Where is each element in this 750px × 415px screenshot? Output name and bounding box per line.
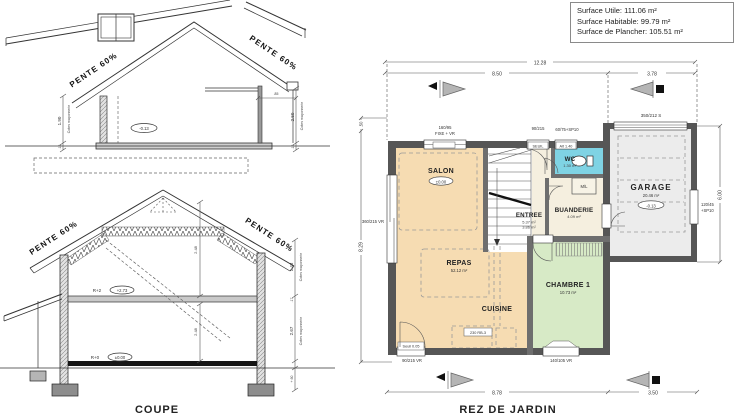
upper-floor-slab: [68, 296, 257, 302]
surface-habitable: Surface Habitable: 99.79 m²: [577, 17, 727, 28]
garage-door-section: [205, 82, 298, 143]
ml-closet: M/L: [572, 178, 596, 194]
upper-left-dimensions: 1.90 .12 Cotes maçonnerie: [57, 94, 71, 152]
section-marker-bottom-right: [627, 371, 660, 389]
wc-label: WC: [565, 156, 576, 163]
coupe-upper-section: -0.13 PENTE 60% PENTE 60% 1.90 .12 Cotes…: [5, 0, 330, 173]
svg-text:+SP10: +SP10: [701, 208, 714, 213]
section-marker-top-left: [428, 80, 465, 98]
ground-slab: [68, 361, 257, 366]
garage-label: GARAGE: [630, 183, 671, 192]
svg-text:1.43: 1.43: [289, 262, 294, 271]
architectural-drawing-sheet: -0.13 PENTE 60% PENTE 60% 1.90 .12 Cotes…: [0, 0, 750, 415]
opening-top-window: 160/95 FIXE + VR: [424, 125, 466, 149]
svg-text:2.50: 2.50: [290, 112, 295, 121]
svg-text:230 RB-3: 230 RB-3: [470, 331, 486, 335]
upper-right-dimensions: 2.50 .12 Cotes maçonnerie .85: [256, 86, 304, 152]
chambre-closet: [556, 243, 602, 256]
roof-insulation-right: [217, 233, 260, 264]
svg-text:3.86 m²: 3.86 m²: [522, 225, 536, 230]
svg-text:350/212 S: 350/212 S: [641, 113, 662, 118]
opening-garage-door: 350/212 S: [614, 113, 687, 130]
opening-wc-window: Alt 1.40 60/75+SP10: [555, 127, 579, 149]
floor-plan: M/L 160/95 FIXE + VR SEUIL 90/215: [359, 60, 724, 397]
dim-left-small: .50: [359, 121, 364, 127]
section-window: [98, 14, 134, 41]
svg-text:Cotes maçonnerie: Cotes maçonnerie: [299, 317, 303, 345]
opening-garage-window: 120/45 +SP10: [690, 190, 714, 224]
svg-text:.12: .12: [291, 145, 295, 150]
pente-label-upper-left: PENTE 60%: [68, 51, 119, 90]
svg-text:+2.73: +2.73: [117, 288, 128, 293]
svg-text:Alt 1.40: Alt 1.40: [560, 144, 573, 148]
salon-label: SALON: [428, 168, 454, 175]
level-marker-r2: R+2 +2.73: [93, 286, 134, 294]
svg-text:20.46 m²: 20.46 m²: [643, 193, 660, 198]
svg-text:Cotes maçonnerie: Cotes maçonnerie: [299, 253, 303, 281]
svg-text:1.30 m²: 1.30 m²: [563, 163, 577, 168]
svg-text:.85: .85: [274, 92, 279, 96]
svg-text:+.60: +.60: [290, 375, 294, 382]
svg-text:SEUIL: SEUIL: [533, 144, 544, 148]
roof-insulation-left: [66, 233, 109, 265]
dim-right-height: 6.00: [718, 190, 724, 200]
svg-text:2.67: 2.67: [289, 326, 294, 335]
dim-top-left: 8.50: [492, 72, 502, 78]
svg-text:-0.13: -0.13: [646, 203, 656, 208]
repas-label: REPAS: [446, 260, 471, 267]
svg-text:160/95: 160/95: [439, 125, 452, 130]
cuisine-label: CUISINE: [482, 306, 513, 313]
section-marker-bottom-left: [436, 371, 473, 389]
section-marker-top-right: [631, 80, 664, 98]
svg-text:±0.00: ±0.00: [436, 179, 447, 184]
coupe-lower-section: 2.48 2.48 R+2 +2.73 R+0 ±0.00 PENTE 60% …: [0, 190, 335, 396]
svg-text:.17: .17: [290, 298, 294, 303]
svg-text:.12: .12: [58, 145, 62, 150]
lower-right-dimensions: 1.43 .17 2.67 +.60 Cotes maçonnerie Cote…: [289, 238, 303, 392]
room-chambre-fill: [531, 240, 606, 351]
svg-text:R+2: R+2: [93, 288, 102, 293]
svg-text:±0.00: ±0.00: [115, 355, 126, 360]
svg-text:Seuil 0.05: Seuil 0.05: [403, 345, 420, 349]
level-marker-upper: -0.13: [131, 124, 157, 133]
surface-info-box: Surface Utile: 111.06 m² Surface Habitab…: [570, 2, 734, 43]
svg-text:60/75+SP10: 60/75+SP10: [555, 127, 579, 132]
dim-top-right: 3.78: [647, 72, 657, 78]
buanderie-label: BUANDERIE: [555, 207, 594, 214]
drawing-svg: -0.13 PENTE 60% PENTE 60% 1.90 .12 Cotes…: [0, 0, 750, 415]
dim-bottom-left: 8.78: [492, 391, 502, 397]
truss-dashed: [150, 198, 176, 212]
svg-text:120/45: 120/45: [701, 202, 714, 207]
chambre-label: CHAMBRE 1: [546, 282, 590, 289]
svg-text:4.09 m²: 4.09 m²: [567, 214, 581, 219]
dim-left-height: 8.29: [359, 242, 365, 252]
svg-text:2.48: 2.48: [193, 245, 198, 254]
lower-left-wall: [60, 255, 68, 385]
opening-left-window: 360/215 VR: [362, 175, 397, 263]
svg-text:140/105 VR: 140/105 VR: [550, 358, 572, 363]
surface-plancher: Surface de Plancher: 105.51 m²: [577, 27, 727, 38]
svg-text:10.73 m²: 10.73 m²: [560, 290, 577, 295]
svg-text:90/215: 90/215: [532, 126, 545, 131]
coupe-title: COUPE: [135, 404, 179, 415]
lower-right-wall: [257, 253, 265, 385]
dim-top-total: 12.28: [534, 61, 547, 67]
ceiling-insulation: [102, 227, 224, 236]
back-roof-right-slope: [246, 2, 306, 30]
footing-left: [52, 384, 78, 396]
section-left-wall: [100, 96, 107, 144]
svg-text:Cotes maçonnerie: Cotes maçonnerie: [300, 102, 304, 130]
foundation-dashed: [34, 158, 248, 173]
svg-text:1.90: 1.90: [57, 116, 62, 125]
kitchen-note: 230 RB-3: [464, 328, 492, 336]
svg-text:90/215 VR: 90/215 VR: [402, 358, 422, 363]
pente-label-lower-left: PENTE 60%: [28, 219, 80, 257]
svg-text:2.48: 2.48: [193, 327, 198, 336]
plan-title: REZ DE JARDIN: [459, 404, 556, 415]
pente-label-upper-right: PENTE 60%: [248, 34, 299, 73]
svg-text:360/215 VR: 360/215 VR: [362, 219, 384, 224]
svg-text:Cotes maçonnerie: Cotes maçonnerie: [67, 105, 71, 133]
svg-text:R+0: R+0: [91, 355, 100, 360]
svg-text:FIXE + VR: FIXE + VR: [435, 131, 455, 136]
opening-chambre-window: 140/105 VR: [543, 341, 579, 363]
ml-label: M/L: [581, 184, 589, 189]
interior-dimensions: 2.48 2.48: [193, 200, 203, 363]
entree-label: ENTREE: [516, 212, 542, 219]
dim-bottom-right: 3.50: [648, 391, 658, 397]
surface-utile: Surface Utile: 111.06 m²: [577, 6, 727, 17]
svg-text:52.12 m²: 52.12 m²: [451, 268, 468, 273]
level-value: -0.13: [139, 126, 149, 131]
level-marker-r0: R+0 ±0.00: [91, 353, 132, 361]
footing-right: [248, 384, 274, 396]
